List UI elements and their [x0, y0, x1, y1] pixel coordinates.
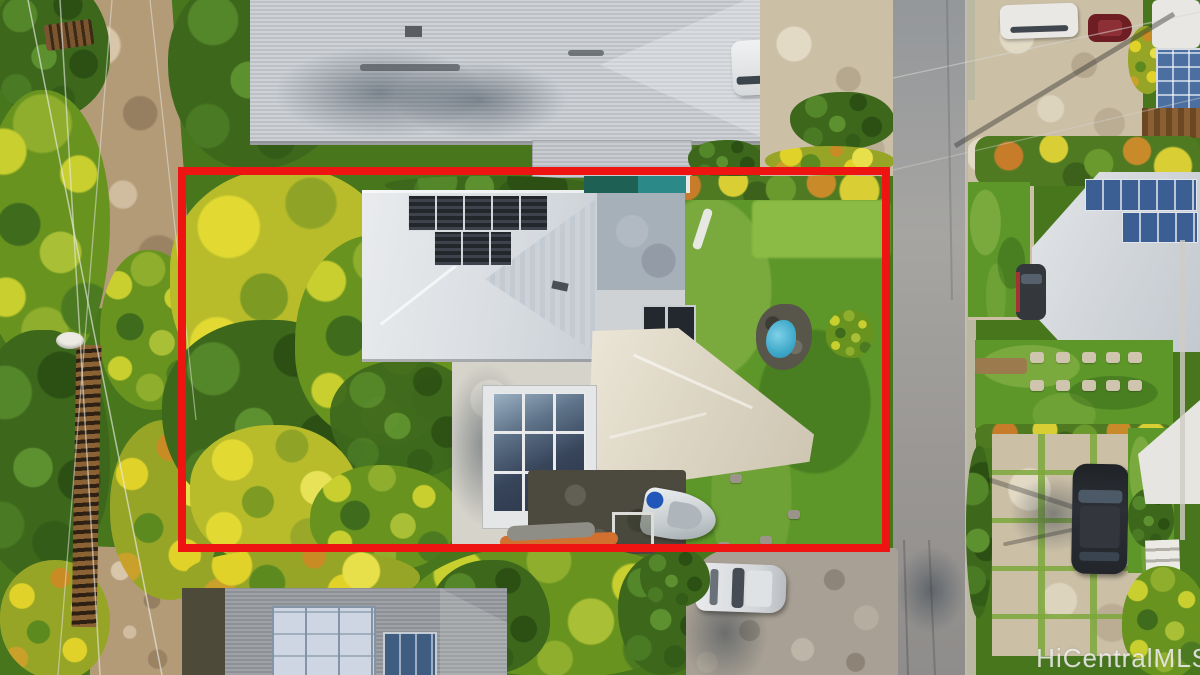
suv-windshield: [1078, 490, 1122, 504]
satellite-dish: [56, 332, 84, 349]
stepping-stone: [1128, 352, 1142, 363]
stepping-stone: [1056, 380, 1070, 391]
right-house-solar-array-2: [1122, 212, 1198, 243]
tilled-soil-patch: [1142, 108, 1200, 138]
wood-fence: [72, 345, 102, 627]
aerial-photo-stage: HiCentralMLS: [0, 0, 1200, 675]
roof-vent-strip: [360, 64, 460, 71]
right-house-solar-array-1: [1085, 179, 1197, 211]
right-lawn-stepping-stones: [975, 340, 1173, 428]
suv-rear-window: [1079, 552, 1119, 562]
stepping-stone: [1030, 380, 1044, 391]
parked-red-car-top: [1088, 14, 1132, 42]
parked-car-right-house: [1016, 264, 1046, 320]
neighbor-house-bottom-roof: [225, 588, 507, 675]
roof-vent-strip: [568, 50, 604, 56]
street: [893, 0, 967, 675]
neighbor-right-solar-roof-small: [1156, 48, 1200, 110]
white-van-top-right: [1152, 0, 1200, 48]
car-windshield: [1021, 274, 1042, 284]
parked-dark-suv: [1071, 464, 1129, 575]
dirt-path-right: [975, 358, 1027, 374]
car-red-stripe: [1016, 272, 1020, 312]
vegetation-over-pavers: [640, 548, 710, 608]
car-roof: [745, 570, 772, 607]
street-shadow: [895, 545, 967, 635]
top-neighbor-driveway: [760, 0, 896, 176]
stepping-stone: [1082, 380, 1096, 391]
stepping-stone: [1106, 380, 1120, 391]
car-windshield: [731, 568, 744, 608]
stepping-stone: [1106, 352, 1120, 363]
red-car-roof: [1098, 20, 1122, 36]
car-rear-window: [709, 569, 718, 605]
truck-window-line: [1010, 25, 1068, 33]
stepping-stone: [1030, 352, 1044, 363]
watermark: HiCentralMLS: [1036, 643, 1200, 674]
driveway-hedge: [790, 92, 895, 150]
right-hedge-vertical: [966, 446, 992, 618]
tree-shadow-on-roof: [390, 60, 570, 140]
roof-skylight: [405, 26, 422, 37]
neighbor-house-top-roof: [250, 0, 768, 145]
stepping-stone: [1082, 352, 1096, 363]
parked-white-car-bottom: [695, 562, 787, 613]
roof-hip-highlight: [440, 588, 507, 675]
stepping-stone: [1056, 352, 1070, 363]
right-wall-line: [1180, 240, 1185, 540]
parked-white-truck-top: [999, 3, 1078, 40]
bottom-house-solar-blue: [383, 632, 437, 675]
grass-joint: [992, 614, 1142, 619]
bottom-house-solar-light: [272, 606, 376, 675]
property-boundary-outline: [178, 167, 890, 552]
suv-roof: [1079, 506, 1120, 549]
stepping-stone: [1128, 380, 1142, 391]
